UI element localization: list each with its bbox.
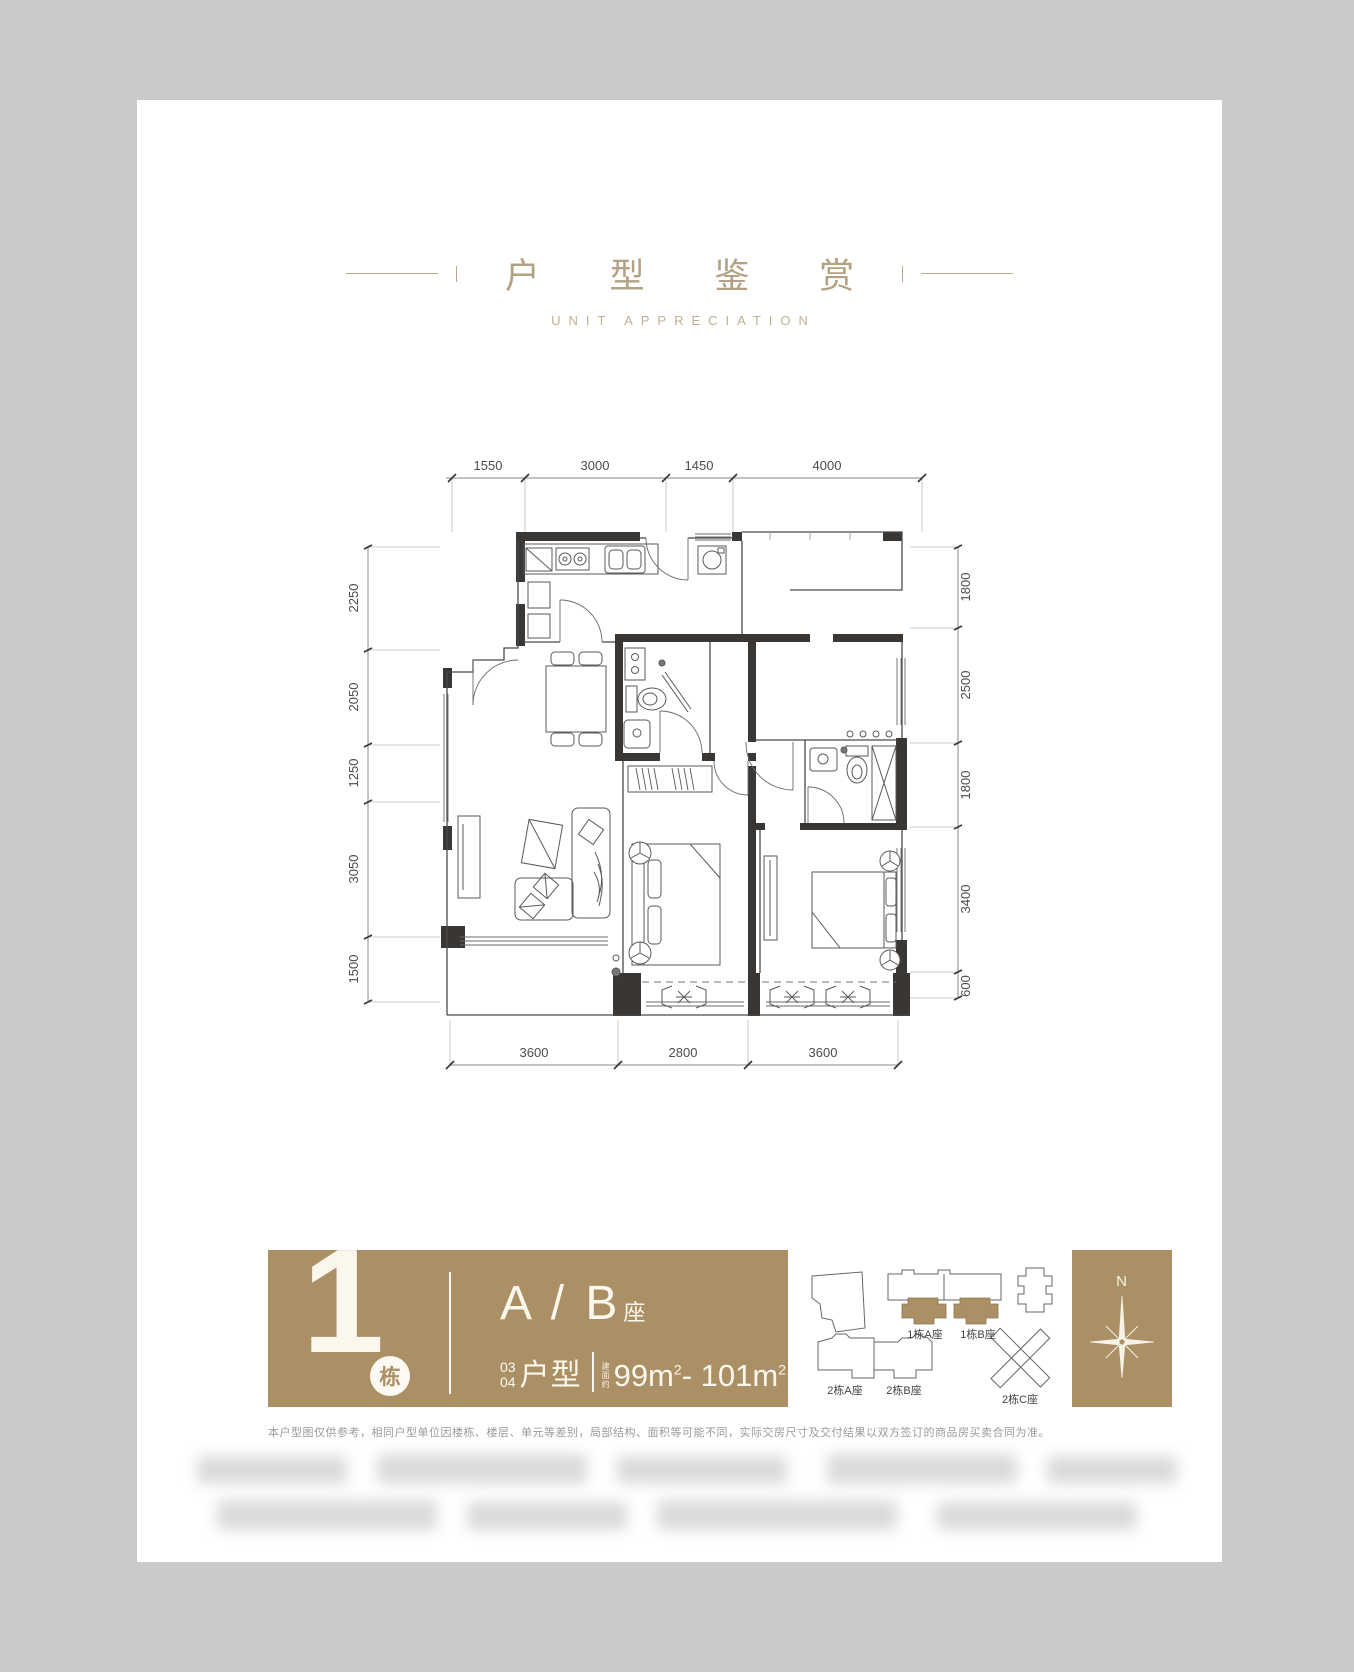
ac-unit (826, 986, 870, 1008)
bedroom-1 (628, 766, 720, 965)
unit-type-label: 户型 (520, 1361, 582, 1391)
key-plan-panel: 1栋A座 1栋B座 2栋A座 2栋B座 2栋C座 (788, 1250, 1072, 1407)
unit-no-bottom: 04 (500, 1375, 516, 1390)
dining-table (546, 652, 606, 746)
svg-text:1250: 1250 (346, 759, 361, 788)
page-title: 户 型 鉴 赏 (475, 248, 884, 299)
walls-dark (441, 532, 910, 1016)
block-suffix: 座 (623, 1302, 645, 1324)
bathroom-2 (810, 731, 896, 820)
unit-numbers: 03 04 (500, 1360, 516, 1390)
blurred-watermark (217, 1500, 437, 1530)
bathroom-1 (624, 648, 691, 748)
page-subtitle: UNIT APPRECIATION (543, 313, 816, 328)
blurred-watermark (827, 1454, 1017, 1484)
title-deco-line-right (921, 273, 1013, 274)
svg-text:2050: 2050 (346, 683, 361, 712)
blurred-watermark (377, 1454, 587, 1484)
disclaimer-text: 本户型图仅供参考，相同户型单位因楼栋、楼层、单元等差别，局部结构、面积等可能不同… (268, 1424, 1198, 1440)
blurred-watermark (617, 1456, 787, 1484)
svg-text:1800: 1800 (958, 771, 973, 800)
building-badge: 栋 (370, 1356, 410, 1396)
area-prefix: 建面约 (602, 1362, 612, 1389)
blurred-watermark (937, 1502, 1137, 1530)
svg-text:2800: 2800 (669, 1045, 698, 1060)
keyplan-label: 2栋B座 (886, 1383, 921, 1397)
doors (473, 538, 844, 823)
blurred-watermark (197, 1456, 347, 1484)
title-deco-line-left (346, 273, 438, 274)
dimension-left: 2250 2050 1250 3050 1500 (346, 545, 440, 1004)
compass-star-icon (1090, 1296, 1154, 1378)
dimension-bottom: 3600 2800 3600 (446, 1020, 902, 1069)
keyplan-building-small (1018, 1268, 1052, 1312)
title-deco-tick-left (456, 266, 457, 282)
dimension-right: 1800 2500 1800 3400 600 (910, 545, 973, 1000)
keyplan-label: 2栋A座 (827, 1383, 862, 1397)
keyplan-building-outline (812, 1272, 865, 1332)
svg-text:4000: 4000 (813, 458, 842, 473)
dimension-top: 1550 3000 1450 4000 (446, 458, 926, 532)
title-deco-tick-right (902, 266, 903, 282)
unit-banner: 1 栋 A / B 座 03 04 户型 建面约 99m2- 101m2 (268, 1250, 788, 1407)
keyplan-label: 2栋C座 (1002, 1392, 1038, 1406)
blurred-watermark (1047, 1456, 1177, 1484)
neighbor-lobby (770, 532, 850, 540)
keyplan-label: 1栋B座 (960, 1327, 995, 1341)
blurred-watermark (467, 1502, 627, 1530)
svg-text:3600: 3600 (809, 1045, 838, 1060)
svg-text:2500: 2500 (958, 671, 973, 700)
floor-plan: 1550 3000 1450 4000 2250 2050 1250 3050 … (310, 420, 1010, 1100)
svg-text:3050: 3050 (346, 855, 361, 884)
living-room (458, 808, 620, 976)
svg-text:2250: 2250 (346, 584, 361, 613)
svg-text:1550: 1550 (474, 458, 503, 473)
poster-page: 户 型 鉴 赏 UNIT APPRECIATION 1550 3000 1450 (137, 100, 1222, 1562)
ac-unit (662, 986, 706, 1008)
block-label: A / B (500, 1280, 621, 1328)
banner-divider (449, 1272, 451, 1394)
svg-text:600: 600 (958, 975, 973, 997)
spec-divider (592, 1352, 594, 1392)
balconies (642, 982, 896, 1008)
bedroom-2 (764, 851, 900, 970)
keyplan-highlighted-units (902, 1298, 998, 1324)
area-range: 99m2- 101m2 (614, 1360, 786, 1391)
keyplan-label: 1栋A座 (907, 1327, 942, 1341)
unit-no-top: 03 (500, 1360, 516, 1375)
utility-washer (698, 546, 726, 574)
ac-unit (770, 986, 814, 1008)
building-number: 1 (302, 1250, 384, 1376)
svg-text:3400: 3400 (958, 885, 973, 914)
svg-text:1800: 1800 (958, 573, 973, 602)
compass-north-label: N (1116, 1273, 1128, 1290)
svg-text:1500: 1500 (346, 955, 361, 984)
compass-block: N (1072, 1250, 1172, 1407)
blurred-watermark (657, 1500, 897, 1530)
svg-text:3000: 3000 (581, 458, 610, 473)
svg-text:3600: 3600 (520, 1045, 549, 1060)
poster-canvas: { "header": { "title": "户 型 鉴 赏", "subti… (0, 0, 1354, 1672)
kitchen (524, 544, 658, 638)
title-section: 户 型 鉴 赏 UNIT APPRECIATION (137, 248, 1222, 328)
keyplan-building-2c (991, 1328, 1050, 1387)
svg-text:1450: 1450 (685, 458, 714, 473)
